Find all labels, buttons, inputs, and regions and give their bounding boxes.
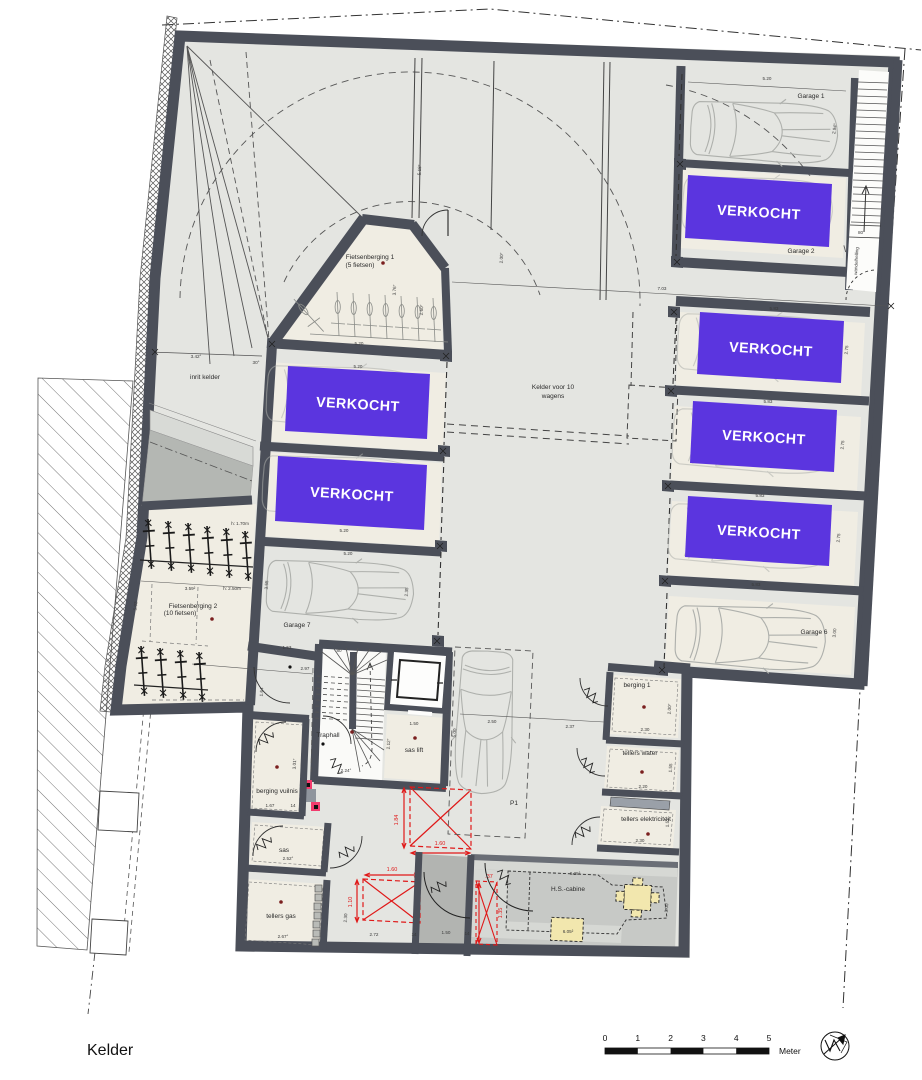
svg-text:6.25²: 6.25²	[570, 871, 581, 876]
svg-text:2.12°: 2.12°	[386, 738, 392, 749]
svg-text:tellers gas: tellers gas	[266, 913, 296, 920]
svg-text:2.20: 2.20	[639, 784, 648, 789]
svg-text:80: 80	[858, 230, 864, 235]
svg-text:1.53°: 1.53°	[665, 816, 671, 827]
svg-text:2.00°: 2.00°	[499, 252, 505, 263]
svg-text:3.55: 3.55	[264, 580, 269, 590]
svg-text:5.20: 5.20	[763, 76, 772, 81]
svg-text:3.42°: 3.42°	[191, 354, 202, 359]
svg-text:1.50: 1.50	[442, 930, 451, 935]
svg-text:3.76°: 3.76°	[392, 284, 398, 295]
svg-text:2.50: 2.50	[488, 719, 497, 724]
svg-text:1.35: 1.35	[498, 908, 504, 919]
svg-text:sas: sas	[279, 847, 290, 854]
svg-text:inrit kelder: inrit kelder	[190, 374, 221, 381]
svg-text:sas lift: sas lift	[405, 747, 424, 754]
svg-text:2.35: 2.35	[404, 587, 409, 597]
svg-text:h: 1.70m: h: 1.70m	[231, 521, 249, 526]
svg-text:5.83: 5.83	[756, 493, 765, 498]
svg-text:Traphall: Traphall	[316, 732, 340, 739]
svg-text:14: 14	[290, 803, 296, 808]
svg-text:2.37: 2.37	[566, 724, 575, 729]
svg-text:1.67: 1.67	[266, 803, 275, 808]
svg-text:2.75: 2.75	[836, 533, 842, 543]
svg-text:Kelder voor 10: Kelder voor 10	[532, 384, 575, 391]
svg-text:H.S.-cabine: H.S.-cabine	[551, 886, 585, 893]
svg-text:14: 14	[411, 932, 417, 937]
svg-text:tellers water: tellers water	[622, 750, 658, 757]
svg-text:0: 0	[603, 1033, 608, 1043]
svg-text:1.60: 1.60	[387, 867, 398, 873]
svg-text:Kelder: Kelder	[87, 1042, 134, 1059]
svg-text:2.24°: 2.24°	[341, 768, 352, 773]
svg-text:wagens: wagens	[541, 393, 565, 400]
svg-text:P1: P1	[510, 800, 518, 807]
svg-text:3.59²: 3.59²	[185, 586, 196, 591]
svg-text:2: 2	[668, 1033, 673, 1043]
svg-text:1.50: 1.50	[410, 721, 419, 726]
svg-text:(10 fietsen): (10 fietsen)	[164, 610, 197, 617]
svg-text:80: 80	[336, 648, 342, 653]
svg-text:6.05²: 6.05²	[563, 929, 574, 934]
svg-text:3.00: 3.00	[832, 628, 838, 638]
svg-text:2.67°: 2.67°	[278, 934, 289, 939]
svg-text:5.00: 5.00	[452, 728, 457, 738]
svg-text:4: 4	[734, 1033, 739, 1043]
svg-text:2.97: 2.97	[301, 666, 310, 671]
svg-text:5.20: 5.20	[340, 528, 349, 533]
svg-text:5.83: 5.83	[752, 582, 761, 587]
svg-text:1.64: 1.64	[259, 687, 264, 697]
svg-text:3.01°: 3.01°	[292, 758, 298, 769]
svg-text:berging 1: berging 1	[623, 682, 650, 689]
svg-text:5.83: 5.83	[764, 399, 773, 404]
svg-text:2.72: 2.72	[370, 932, 379, 937]
svg-text:5.83: 5.83	[770, 306, 779, 311]
svg-text:tellers elektriciteit: tellers elektriciteit	[621, 816, 671, 823]
svg-text:2.75: 2.75	[840, 440, 846, 450]
svg-text:1.10: 1.10	[348, 897, 354, 908]
svg-text:2.30: 2.30	[636, 838, 645, 843]
svg-text:Garage 2: Garage 2	[787, 248, 814, 255]
svg-text:Garage 1: Garage 1	[797, 93, 824, 100]
svg-text:2.30: 2.30	[641, 727, 650, 732]
svg-text:2.60°: 2.60°	[419, 304, 425, 315]
svg-text:5.20: 5.20	[344, 551, 353, 556]
svg-text:5: 5	[767, 1033, 772, 1043]
svg-text:Meter: Meter	[779, 1046, 801, 1056]
svg-text:1.60: 1.60	[435, 841, 446, 847]
svg-text:7.03: 7.03	[658, 286, 667, 291]
svg-text:5.20: 5.20	[355, 341, 364, 346]
svg-text:14: 14	[464, 931, 470, 936]
svg-text:Fietsenberging 1: Fietsenberging 1	[346, 254, 395, 261]
svg-text:3: 3	[701, 1033, 706, 1043]
svg-text:1.55: 1.55	[668, 763, 673, 773]
svg-text:30°: 30°	[253, 360, 260, 365]
svg-text:1.53: 1.53	[283, 645, 292, 650]
svg-text:5.20: 5.20	[354, 364, 363, 369]
svg-text:2.00°: 2.00°	[667, 703, 673, 714]
svg-text:5.02: 5.02	[133, 601, 139, 611]
svg-text:Fietsenberging 2: Fietsenberging 2	[169, 603, 218, 610]
svg-text:5.18°: 5.18°	[417, 164, 423, 175]
svg-text:Garage 6: Garage 6	[800, 629, 827, 636]
svg-text:3.00: 3.00	[664, 903, 669, 913]
svg-text:berging vuilnis: berging vuilnis	[256, 788, 298, 795]
svg-text:2.52°: 2.52°	[283, 856, 294, 861]
svg-text:(5 fietsen): (5 fietsen)	[346, 262, 375, 269]
svg-text:Garage 7: Garage 7	[283, 622, 310, 629]
svg-text:1: 1	[635, 1033, 640, 1043]
svg-text:1.84: 1.84	[394, 815, 400, 826]
svg-text:2.30: 2.30	[343, 913, 348, 923]
svg-text:2.75: 2.75	[844, 345, 850, 355]
